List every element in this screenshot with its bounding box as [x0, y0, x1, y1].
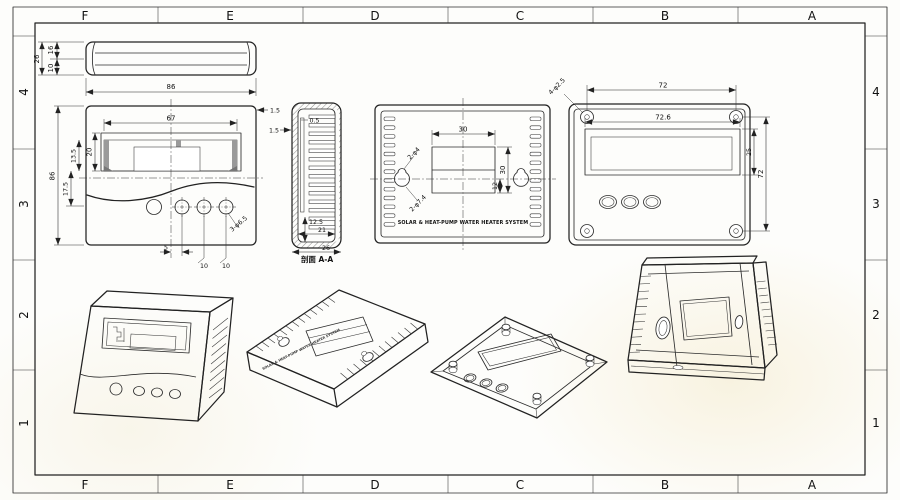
dim-panel-screw-holes: 4-φ2.5 — [547, 77, 566, 96]
button-holes — [172, 197, 236, 217]
engineering-drawing-canvas: F E D C B A F E D C B A 4 3 2 1 4 3 — [0, 0, 900, 500]
zone-letter-bottom: A — [808, 478, 817, 492]
zone-letter-bottom: E — [226, 478, 234, 492]
dim-section-inner-width: 21 — [318, 227, 326, 234]
dim-section-wall: 0.5 — [310, 118, 320, 125]
drawing-sheet: F E D C B A F E D C B A 4 3 2 1 4 3 — [0, 0, 900, 500]
dim-front-pitch: 5 — [164, 245, 168, 252]
zone-number-left: 1 — [17, 419, 31, 427]
zone-letter-bottom: F — [82, 478, 89, 492]
dim-front-spacing-b: 10 — [222, 263, 230, 270]
view-panel: 72 72.6 25 72 4-φ2.5 — [547, 77, 770, 245]
dim-back-window-width: 30 — [459, 126, 468, 134]
iso-back-top-vents-right — [341, 323, 418, 379]
panel-buttons — [600, 196, 661, 209]
dim-front-button-holes: 3-φ6.5 — [229, 215, 249, 234]
dim-front-17-5: 17.5 — [63, 182, 70, 196]
zone-number-right: 1 — [872, 416, 880, 430]
zone-letter-bottom: C — [516, 478, 524, 492]
zone-number-left: 2 — [17, 311, 31, 319]
zone-letter-top: F — [82, 9, 89, 23]
zone-letter-top: C — [516, 9, 524, 23]
drawing-border: F E D C B A F E D C B A 4 3 2 1 4 3 — [13, 7, 887, 493]
section-ribs — [309, 115, 335, 229]
iso-back-cover-top: SOLAR & HEAT-PUMP WATER HEATER SYSTEM — [247, 290, 428, 407]
dim-back-holes-small: 2-φ4 — [406, 146, 421, 161]
zone-number-right: 3 — [872, 197, 880, 211]
iso-front-cover-interior — [431, 317, 607, 418]
brand-text-back-view: SOLAR & HEAT-PUMP WATER HEATER SYSTEM — [398, 220, 529, 226]
zone-letter-top: D — [370, 9, 379, 23]
zone-letter-bottom: D — [370, 478, 379, 492]
zone-number-right: 2 — [872, 308, 880, 322]
dim-panel-window-height: 25 — [746, 148, 753, 156]
section-title: 剖面 A-A — [301, 254, 334, 264]
dim-front-window-height: 20 — [86, 148, 94, 157]
iso-front-lcd-segments — [113, 327, 124, 342]
keyhole-mount-right — [514, 169, 529, 187]
dim-section-lip: 1.5 — [269, 128, 279, 135]
iso-back-shell — [628, 256, 777, 380]
iso-front-cover — [74, 291, 233, 421]
zone-number-right: 4 — [872, 85, 880, 99]
dim-top-upper: 16 — [47, 45, 55, 54]
zone-letter-bottom: B — [661, 478, 669, 492]
iso-interior-screw-bosses — [449, 324, 594, 405]
zone-letter-top: E — [226, 9, 234, 23]
dim-front-13-5: 13.5 — [71, 149, 78, 163]
dim-front-window-width: 67 — [167, 115, 176, 123]
view-front: 67 20 13.5 17.5 86 1.5 3-φ6.5 — [49, 99, 281, 270]
dim-panel-hole-pitch-v: 72 — [757, 170, 765, 179]
panel-screw-holes — [581, 111, 743, 238]
border-zone-dividers — [13, 7, 887, 493]
dim-top-width: 86 — [167, 83, 176, 91]
view-back: 30 30 12 2-φ4 2-φ7.4 SOLAR & HEAT-PUMP W… — [370, 98, 556, 250]
dim-panel-hole-pitch-h: 72 — [659, 82, 668, 90]
iso-shell-vents-left — [629, 276, 651, 352]
dim-section-depth: 12.5 — [309, 219, 323, 226]
dim-front-height: 86 — [49, 171, 57, 180]
dim-back-holes-large: 2-φ7.4 — [408, 194, 427, 213]
iso-back-top-vents-left — [256, 298, 335, 352]
zone-number-left: 3 — [17, 200, 31, 208]
dim-section-outer-width: 26 — [322, 245, 330, 252]
dim-front-spacing-a: 10 — [200, 263, 208, 270]
zone-number-left: 4 — [17, 88, 31, 96]
dim-back-offset: 12 — [492, 182, 499, 190]
dim-front-wall: 1.5 — [270, 108, 280, 115]
dim-top-lower: 10 — [47, 64, 55, 73]
keyhole-mount-left — [395, 169, 410, 187]
dim-top-total-height: 26 — [33, 54, 41, 63]
dim-back-window-height: 30 — [499, 166, 507, 175]
iso-front-power-button — [110, 383, 122, 395]
zone-letter-top: A — [808, 9, 817, 23]
view-top: 26 16 10 86 — [33, 42, 256, 96]
iso-back-top-keyholes — [277, 336, 375, 364]
iso-shell-vents-right — [757, 281, 778, 345]
power-button-hole — [147, 200, 162, 215]
iso-interior-button-holes — [463, 373, 508, 393]
view-section: 1.5 0.5 12.5 21 26 剖面 A-A — [269, 103, 341, 264]
dim-panel-opening-width: 72.6 — [655, 114, 671, 122]
zone-letter-top: B — [661, 9, 669, 23]
